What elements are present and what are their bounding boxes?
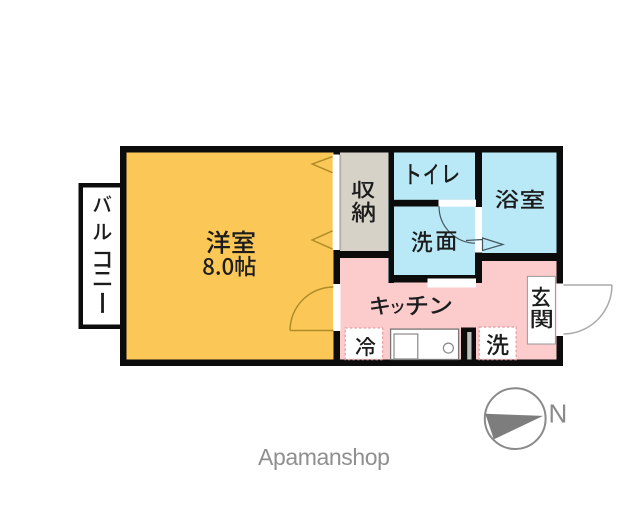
svg-text:Apamanshop: Apamanshop: [258, 444, 390, 470]
svg-text:N: N: [549, 399, 568, 429]
